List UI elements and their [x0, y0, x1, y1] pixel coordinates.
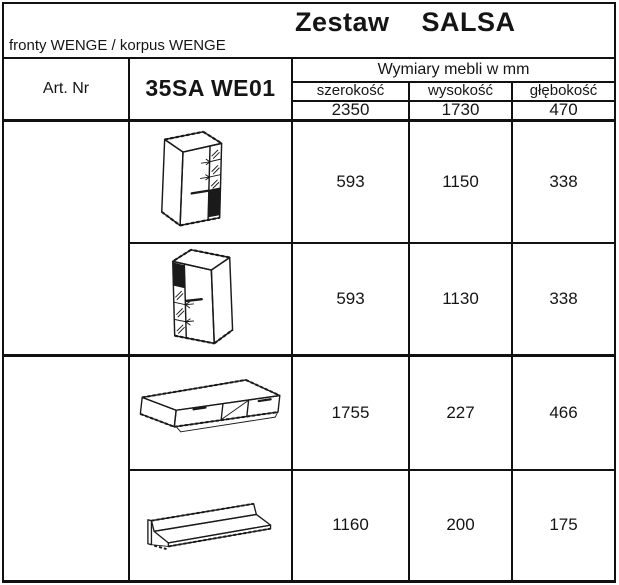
row3-depth: 466	[513, 357, 614, 471]
finish-subtitle: fronty WENGE / korpus WENGE	[9, 37, 226, 54]
row3-width: 1755	[293, 357, 410, 471]
set-total-width: 2350	[293, 102, 410, 122]
row1-height: 1150	[410, 122, 513, 244]
tv-stand-drawing	[133, 377, 289, 449]
art-nr-empty-cell-1	[4, 122, 130, 357]
row3-height: 227	[410, 357, 513, 471]
page-title: Zestaw SALSA	[295, 7, 516, 38]
set-total-height: 1730	[410, 102, 513, 122]
table-row	[130, 471, 293, 580]
table-row	[130, 122, 293, 244]
row4-height: 200	[410, 471, 513, 580]
set-total-depth: 470	[513, 102, 614, 122]
row1-width: 593	[293, 122, 410, 244]
product-code: 35SA WE01	[130, 59, 293, 122]
dims-header: Wymiary mebli w mm	[293, 59, 614, 83]
cabinet-left-glass-drawing	[158, 244, 284, 354]
row1-depth: 338	[513, 122, 614, 244]
row4-depth: 175	[513, 471, 614, 580]
spec-sheet: Zestaw SALSA fronty WENGE / korpus WENGE…	[0, 0, 619, 585]
col-header-depth: głębokość	[513, 83, 614, 102]
row2-height: 1130	[410, 244, 513, 357]
table-row	[130, 244, 293, 357]
dimensions-table: Art. Nr 35SA WE01 Wymiary mebli w mm sze…	[4, 57, 614, 580]
col-header-height: wysokość	[410, 83, 513, 102]
row4-width: 1160	[293, 471, 410, 580]
art-nr-label: Art. Nr	[4, 59, 130, 122]
table-row	[130, 357, 293, 471]
wall-shelf-drawing	[135, 494, 287, 558]
sheet-header: Zestaw SALSA fronty WENGE / korpus WENGE	[4, 4, 614, 57]
cabinet-right-glass-drawing	[148, 126, 274, 238]
row2-width: 593	[293, 244, 410, 357]
art-nr-empty-cell-2	[4, 357, 130, 580]
sheet-frame: Zestaw SALSA fronty WENGE / korpus WENGE…	[2, 2, 616, 583]
row2-depth: 338	[513, 244, 614, 357]
col-header-width: szerokość	[293, 83, 410, 102]
